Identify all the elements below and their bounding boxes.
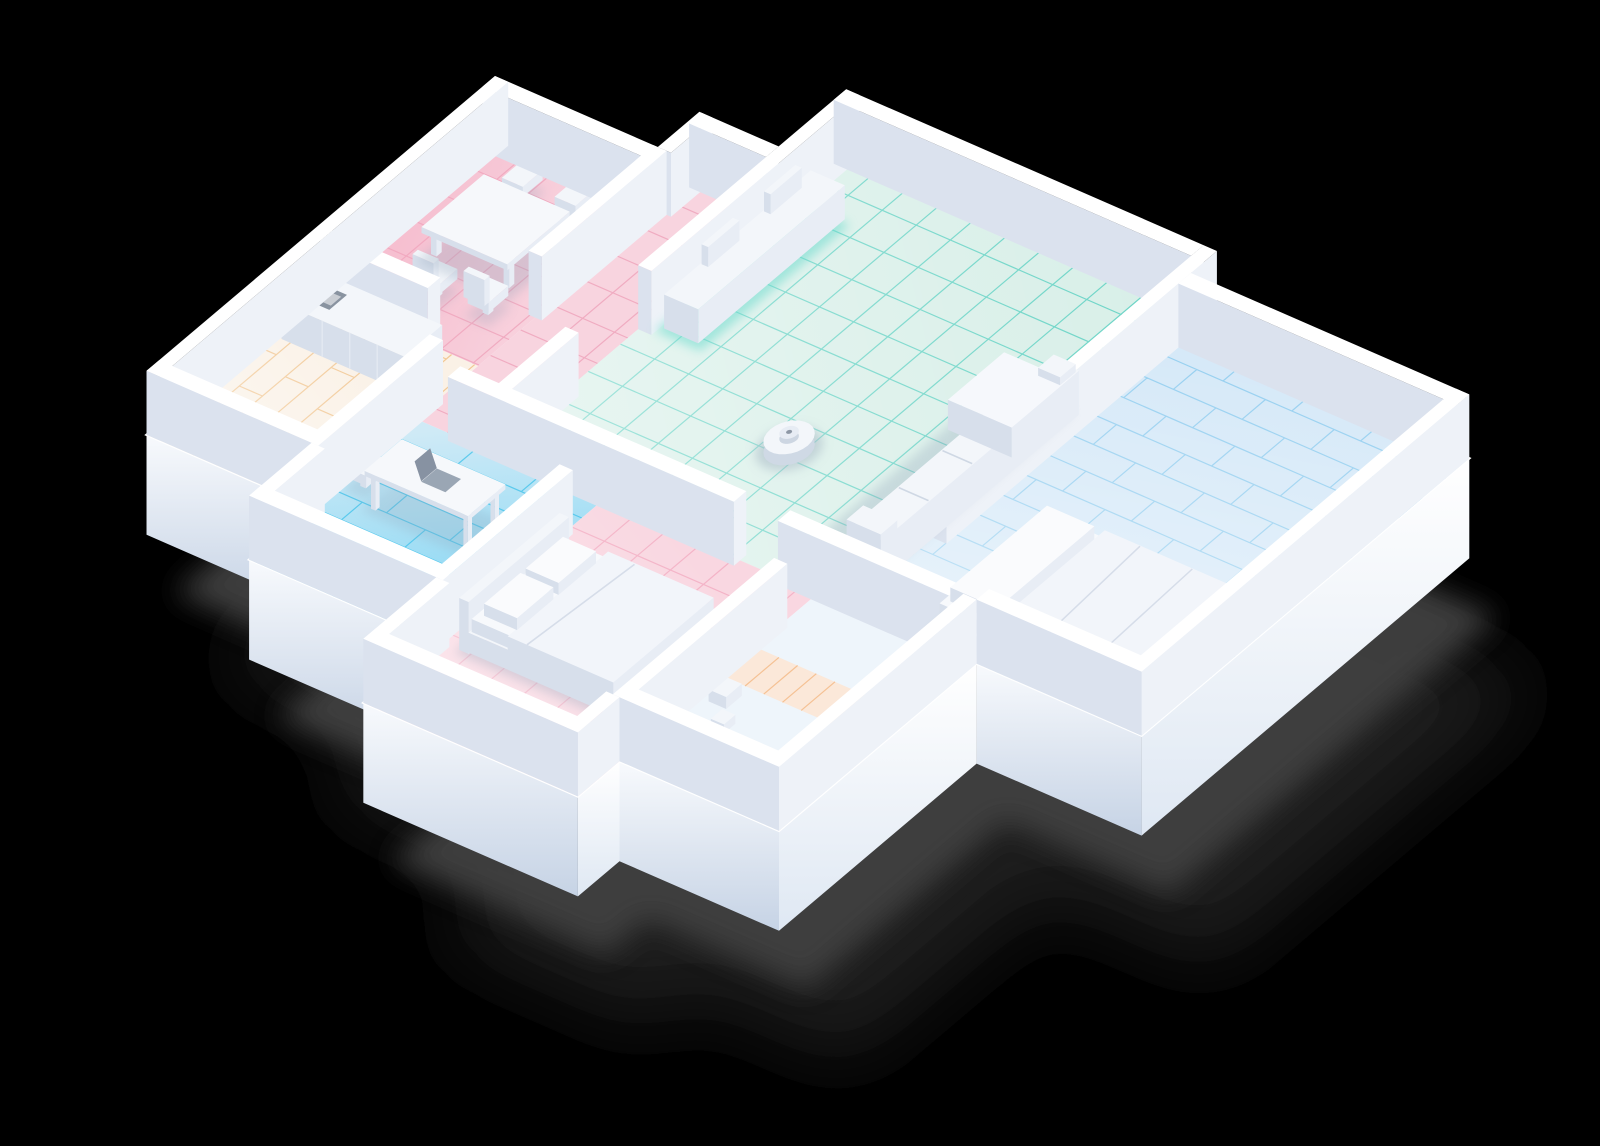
apartment-isometric-render: Isometric 3D apartment floor-plan render… — [0, 0, 1600, 1146]
render-stage: Isometric 3D apartment floor-plan render… — [0, 0, 1600, 1146]
